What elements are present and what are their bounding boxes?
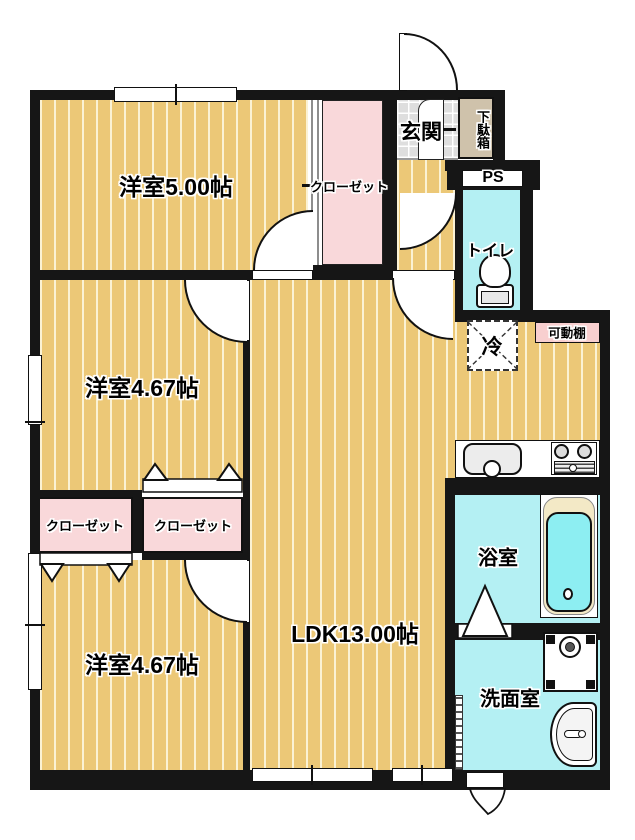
- washroom-opening-hatch: [455, 695, 463, 770]
- washer-pan-corner: [586, 635, 595, 644]
- pipe-space-label: PS: [482, 169, 503, 187]
- washer-faucet-center: [565, 642, 575, 652]
- wall-closet-divider: [133, 497, 142, 553]
- window-tick: [175, 84, 177, 105]
- closet-hall-label: クローゼット: [310, 177, 388, 196]
- wall-closet-row-bottom: [142, 553, 250, 560]
- wall-shoebox-right: [493, 90, 505, 163]
- shoe-cabinet-label: 下駄箱: [475, 110, 490, 149]
- wall-ldk-bedrooms-lower: [243, 623, 250, 770]
- floorplan: 洋室5.00帖 クローゼット 玄関 下駄箱 PS トイレ 冷 可動棚 洋室4.6…: [0, 0, 635, 840]
- window-tick: [311, 765, 313, 785]
- room-label-bedroom4a: 洋室4.67帖: [85, 369, 199, 403]
- bathtub-drain: [563, 588, 573, 600]
- washer-pan-corner: [546, 635, 555, 644]
- toilet-label: トイレ: [466, 237, 514, 261]
- window-tick: [25, 624, 45, 626]
- movable-shelf-label: 可動棚: [548, 323, 586, 342]
- washroom-label: 洗面室: [480, 683, 540, 712]
- room-label-bedroom4b: 洋室4.67帖: [85, 646, 199, 680]
- wall-closet-row-top: [30, 490, 142, 497]
- window-bedroom4b-left: [28, 553, 42, 690]
- window-bedroom4a-left: [28, 355, 42, 425]
- window-tick: [25, 421, 45, 423]
- refrigerator-label: 冷: [482, 331, 503, 361]
- bathroom-label: 浴室: [478, 542, 518, 571]
- stove-burner-right: [577, 444, 592, 459]
- window-tick: [421, 765, 423, 785]
- stove-burner-left: [554, 444, 569, 459]
- wall-below-closet-hall: [310, 265, 397, 280]
- wall-below-bedroom5: [30, 270, 252, 280]
- door-swing-entrance: [404, 33, 458, 90]
- closet-b-label: クローゼット: [154, 516, 232, 535]
- room-label-bedroom5: 洋室5.00帖: [119, 168, 233, 202]
- washer-pan-corner: [586, 680, 595, 689]
- entrance-leader-line: [443, 128, 456, 131]
- stove-knob: [569, 464, 577, 472]
- shoe-cabinet-box: 下駄箱: [458, 97, 494, 159]
- toilet-tank-detail: [481, 291, 509, 304]
- room-label-ldk: LDK13.00帖: [291, 615, 419, 649]
- door-leaf-bedroom5: [252, 270, 313, 280]
- entrance-label: 玄関: [400, 116, 442, 146]
- wall-kitchen-bath: [445, 478, 610, 495]
- door-opening-washroom: [466, 772, 504, 788]
- washbasin-handle-dot: [578, 730, 586, 738]
- wall-right: [600, 310, 610, 790]
- closet-a-label: クローゼット: [46, 516, 124, 535]
- washer-pan-corner: [546, 680, 555, 689]
- room-ldk-floor: [250, 280, 455, 770]
- wall-toilet-right: [520, 187, 533, 310]
- wall-closet-row-right: [243, 490, 250, 560]
- kitchen-faucet: [483, 460, 501, 478]
